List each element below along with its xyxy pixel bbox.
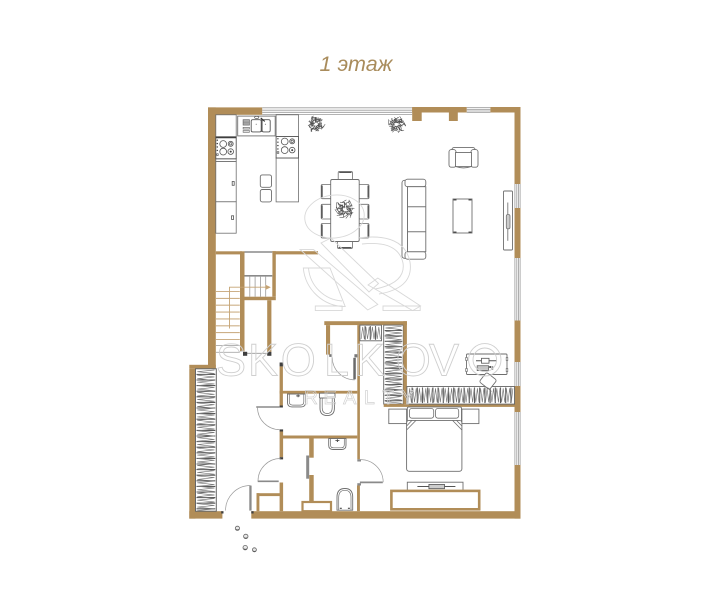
svg-text:O: O — [396, 335, 431, 386]
svg-text:E: E — [324, 387, 337, 409]
svg-text:S: S — [216, 335, 246, 386]
svg-text:A: A — [343, 387, 356, 409]
svg-text:T: T — [382, 387, 394, 409]
svg-text:V: V — [429, 335, 459, 386]
svg-text:K: K — [355, 335, 385, 386]
svg-text:1 этаж: 1 этаж — [320, 52, 394, 76]
svg-text:K: K — [248, 335, 278, 386]
svg-text:L: L — [324, 335, 349, 386]
svg-text:Y: Y — [401, 387, 414, 409]
svg-text:O: O — [281, 335, 316, 386]
svg-text:R: R — [304, 387, 318, 409]
svg-text:L: L — [364, 387, 375, 409]
